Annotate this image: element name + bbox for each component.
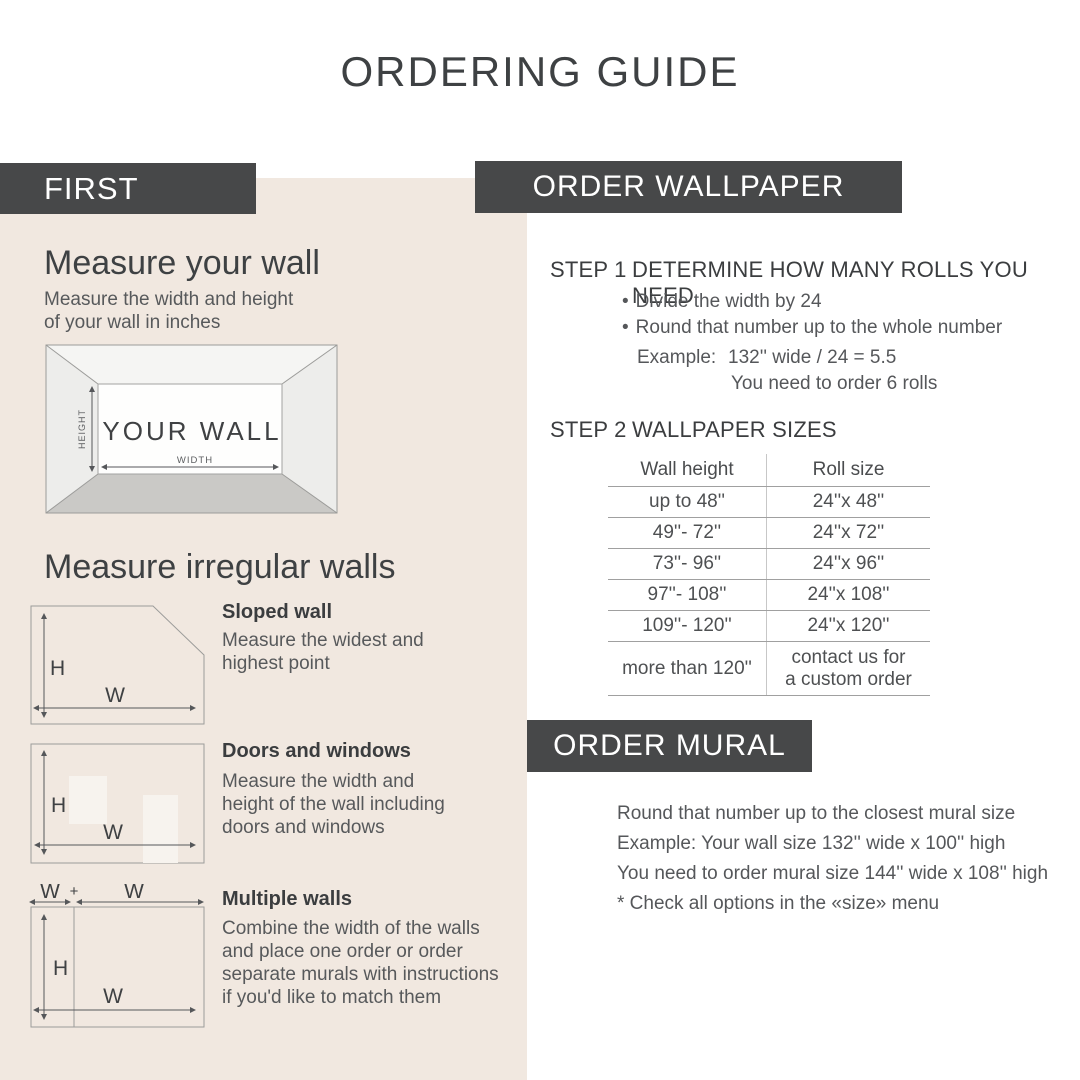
bullet-item: • Divide the width by 24 [622, 289, 1002, 315]
wall-height-cell: 109''- 120'' [608, 611, 767, 641]
roll-size-cell: 24''x 120'' [767, 611, 930, 641]
step2-label: STEP 2 [550, 417, 627, 443]
sloped-wall-diagram: H W [28, 596, 213, 731]
your-wall-label: YOUR WALL [102, 416, 281, 446]
h-label: H [50, 657, 65, 680]
step1-label: STEP 1 [550, 257, 627, 283]
roll-size-cell: 24''x 108'' [767, 580, 930, 610]
width-label: WIDTH [177, 455, 213, 466]
doors-windows-title: Doors and windows [222, 740, 411, 763]
h-label: H [53, 957, 68, 980]
measure-wall-heading: Measure your wall [44, 244, 320, 283]
table-header-row: Wall height Roll size [608, 454, 930, 487]
plus-label: + [70, 884, 79, 900]
w-label: W [105, 684, 125, 707]
doors-windows-diagram: H W [28, 736, 213, 868]
step1-bullets: • Divide the width by 24 • Round that nu… [622, 289, 1002, 341]
mural-line: You need to order mural size 144'' wide … [617, 859, 1048, 889]
wall-height-cell: 49''- 72'' [608, 518, 767, 548]
sloped-wall-title: Sloped wall [222, 601, 332, 624]
step2-title: WALLPAPER SIZES [632, 417, 837, 443]
section-header-order-wallpaper: ORDER WALLPAPER [475, 161, 902, 213]
h-label: H [51, 794, 66, 817]
mural-line: Example: Your wall size 132'' wide x 100… [617, 829, 1048, 859]
multiple-walls-title: Multiple walls [222, 888, 352, 911]
order-mural-label: ORDER MURAL [553, 729, 786, 763]
wall-diagram: YOUR WALL HEIGHT WIDTH [40, 342, 340, 514]
w-label: W [40, 884, 60, 903]
roll-size-cell: 24''x 96'' [767, 549, 930, 579]
bullet-icon: • [622, 291, 629, 313]
w-label: W [103, 985, 123, 1008]
example-value: 132'' wide / 24 = 5.5 [728, 347, 896, 369]
first-header-label: FIRST [44, 171, 139, 207]
w-label: W [124, 884, 144, 903]
table-row: 73''- 96'' 24''x 96'' [608, 549, 930, 580]
table-row: 49''- 72'' 24''x 72'' [608, 518, 930, 549]
page-title: ORDERING GUIDE [0, 48, 1080, 96]
roll-size-cell: contact us for a custom order [767, 642, 930, 695]
doors-windows-description: Measure the width and height of the wall… [222, 770, 445, 839]
wall-height-cell: more than 120'' [608, 642, 767, 695]
height-label: HEIGHT [77, 409, 87, 449]
ordering-guide-page: ORDERING GUIDE FIRST ORDER WALLPAPER ORD… [0, 0, 1080, 1080]
multiple-walls-diagram: W + W H W [28, 884, 213, 1032]
wall-height-cell: 73''- 96'' [608, 549, 767, 579]
roll-size-cell: 24''x 48'' [767, 487, 930, 517]
table-row: more than 120'' contact us for a custom … [608, 642, 930, 696]
multiple-walls-description: Combine the width of the walls and place… [222, 917, 499, 1009]
wallpaper-sizes-table: Wall height Roll size up to 48'' 24''x 4… [608, 454, 930, 696]
measure-wall-description: Measure the width and height of your wal… [44, 288, 293, 334]
roll-size-cell: 24''x 72'' [767, 518, 930, 548]
bullet-text: Divide the width by 24 [636, 291, 822, 313]
mural-instructions: Round that number up to the closest mura… [617, 799, 1048, 919]
roll-size-header: Roll size [767, 454, 930, 486]
bullet-text: Round that number up to the whole number [636, 317, 1003, 339]
sloped-wall-description: Measure the widest and highest point [222, 629, 424, 675]
wall-height-cell: up to 48'' [608, 487, 767, 517]
bullet-item: • Round that number up to the whole numb… [622, 315, 1002, 341]
wall-height-header: Wall height [608, 454, 767, 486]
mural-line: * Check all options in the «size» menu [617, 889, 1048, 919]
order-wallpaper-label: ORDER WALLPAPER [533, 170, 845, 204]
section-header-order-mural: ORDER MURAL [527, 720, 812, 772]
example-label: Example: [637, 347, 716, 369]
irregular-walls-heading: Measure irregular walls [44, 548, 395, 587]
mural-line: Round that number up to the closest mura… [617, 799, 1048, 829]
table-row: 109''- 120'' 24''x 120'' [608, 611, 930, 642]
example-note: You need to order 6 rolls [731, 373, 937, 395]
bullet-icon: • [622, 317, 629, 339]
table-row: 97''- 108'' 24''x 108'' [608, 580, 930, 611]
table-row: up to 48'' 24''x 48'' [608, 487, 930, 518]
w-label: W [103, 821, 123, 844]
wall-height-cell: 97''- 108'' [608, 580, 767, 610]
section-header-first: FIRST [0, 163, 256, 214]
